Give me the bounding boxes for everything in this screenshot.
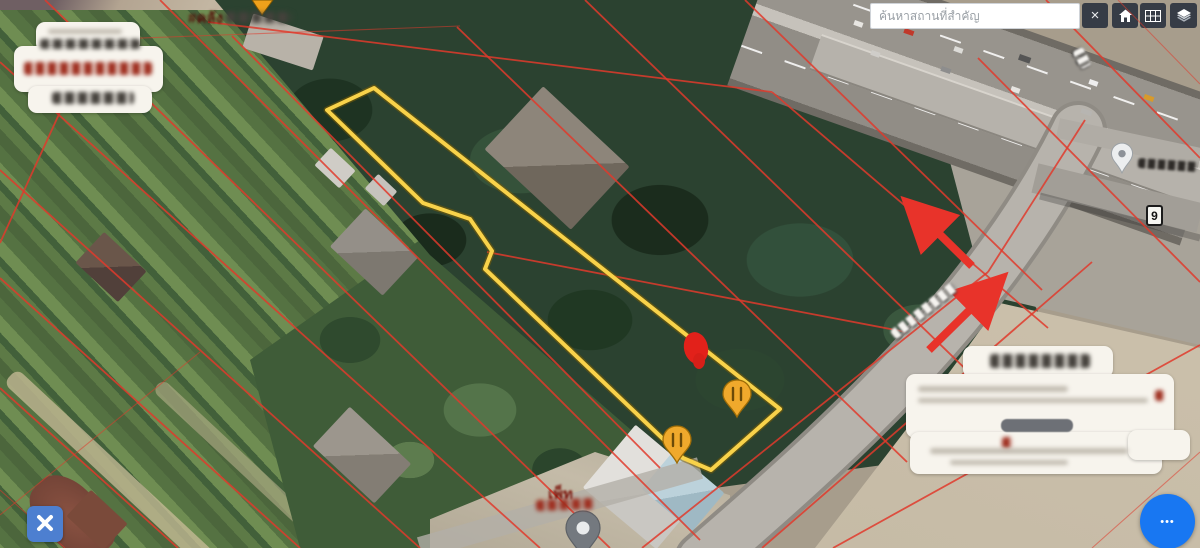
note-line-blurred [950,460,1068,465]
note-line-blurred [918,398,1148,403]
map-tools-button[interactable] [27,506,63,542]
direction-arrow-1 [921,216,972,266]
interchange-road [420,128,1200,548]
restaurant-marker-1[interactable] [723,380,751,417]
chat-button[interactable]: ••• [1140,494,1195,548]
parcel-outline-polygon[interactable] [327,88,780,470]
note-line-blurred [48,29,122,34]
note-line-blurred [918,386,1068,392]
cross-tools-icon [35,513,55,536]
junction-pin-white[interactable] [1111,143,1132,173]
note-line-red-blurred [24,62,152,75]
note-red-mark-blurred [1155,390,1164,401]
note-title-blurred [990,354,1090,368]
route-9-shield: 9 [1146,205,1163,226]
search-bar [870,3,1080,29]
vehicles [853,20,1154,116]
note-gray-bar [1001,419,1073,432]
note-line-blurred [930,448,1128,454]
shop-name-label-line2-blurred [536,498,594,511]
note-line-blurred [52,92,134,104]
place-pin-gray[interactable] [566,511,600,548]
map-canvas[interactable]: #คลัง เพ็ท 9 × [0,0,1200,548]
search-input[interactable] [870,3,1080,29]
hashtag-place-label: #คลัง [188,6,292,30]
note-line-blurred [40,39,140,49]
